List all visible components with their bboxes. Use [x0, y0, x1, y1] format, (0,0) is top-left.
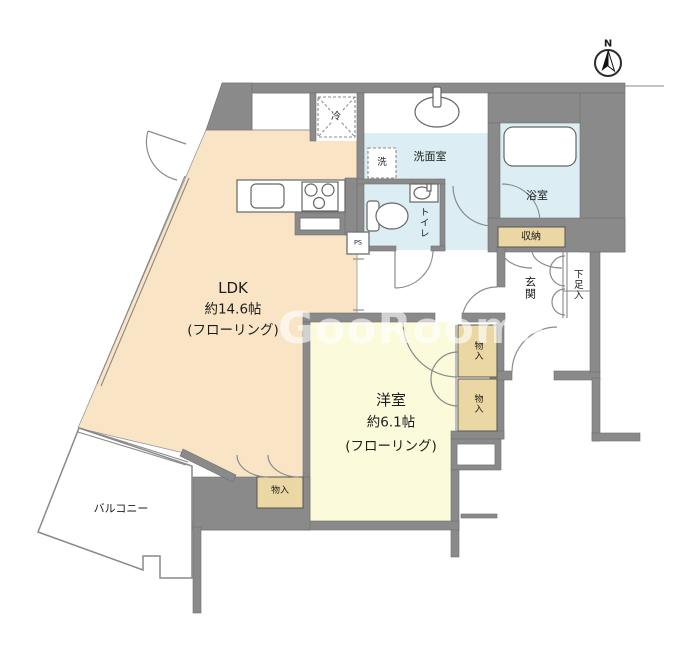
- toilet-label: トイレ: [418, 207, 428, 239]
- bathtub: [504, 127, 576, 166]
- pipe-space-label: PS: [354, 239, 362, 246]
- toilet-bowl: [376, 203, 408, 229]
- closet-ldk-label: 物入: [271, 487, 289, 497]
- storage-bifold: [532, 250, 562, 268]
- burner: [322, 184, 334, 196]
- bedroom-name-label: 洋室: [376, 392, 406, 409]
- kitchen-sink: [251, 184, 284, 208]
- storage-label: 収納: [521, 232, 541, 243]
- refrigerator-label: 冷: [330, 112, 342, 123]
- toilet-sink-faucet: [427, 184, 431, 191]
- north-label: N: [604, 39, 612, 50]
- shoe-cabinet-label: 下足入: [572, 269, 582, 301]
- washroom-label: 洗面室: [414, 151, 447, 163]
- storage-bifold: [502, 250, 532, 268]
- washer-label: 洗: [377, 158, 387, 168]
- ldk-name-label: LDK: [218, 280, 248, 297]
- bathroom-label: 浴室: [526, 190, 548, 202]
- ldk-entry-door-arc: [146, 131, 177, 180]
- entrance-label: 玄関: [525, 276, 536, 300]
- exterior-niche: [252, 93, 310, 130]
- balcony-label: バルコニー: [94, 503, 149, 515]
- floor-plan: LDK 約14.6帖 (フローリング) 洋室 約6.1帖 (フローリング) 洗面…: [0, 0, 675, 645]
- ldk-floor-label: (フローリング): [187, 324, 279, 339]
- bedroom-floor-label: (フローリング): [345, 440, 437, 455]
- burner: [305, 184, 317, 196]
- bedroom-size-label: 約6.1帖: [367, 416, 415, 431]
- ldk-size-label: 約14.6帖: [204, 303, 261, 318]
- toilet-door-arc: [395, 250, 433, 288]
- north-compass: [595, 50, 621, 76]
- burner: [314, 198, 325, 209]
- vanity-faucet: [433, 87, 441, 107]
- closet-upper-label: 物入: [473, 341, 482, 361]
- closet-lower-label: 物入: [473, 394, 482, 414]
- floor-plan-drawing: [0, 0, 675, 645]
- front-door-arc: [512, 327, 557, 372]
